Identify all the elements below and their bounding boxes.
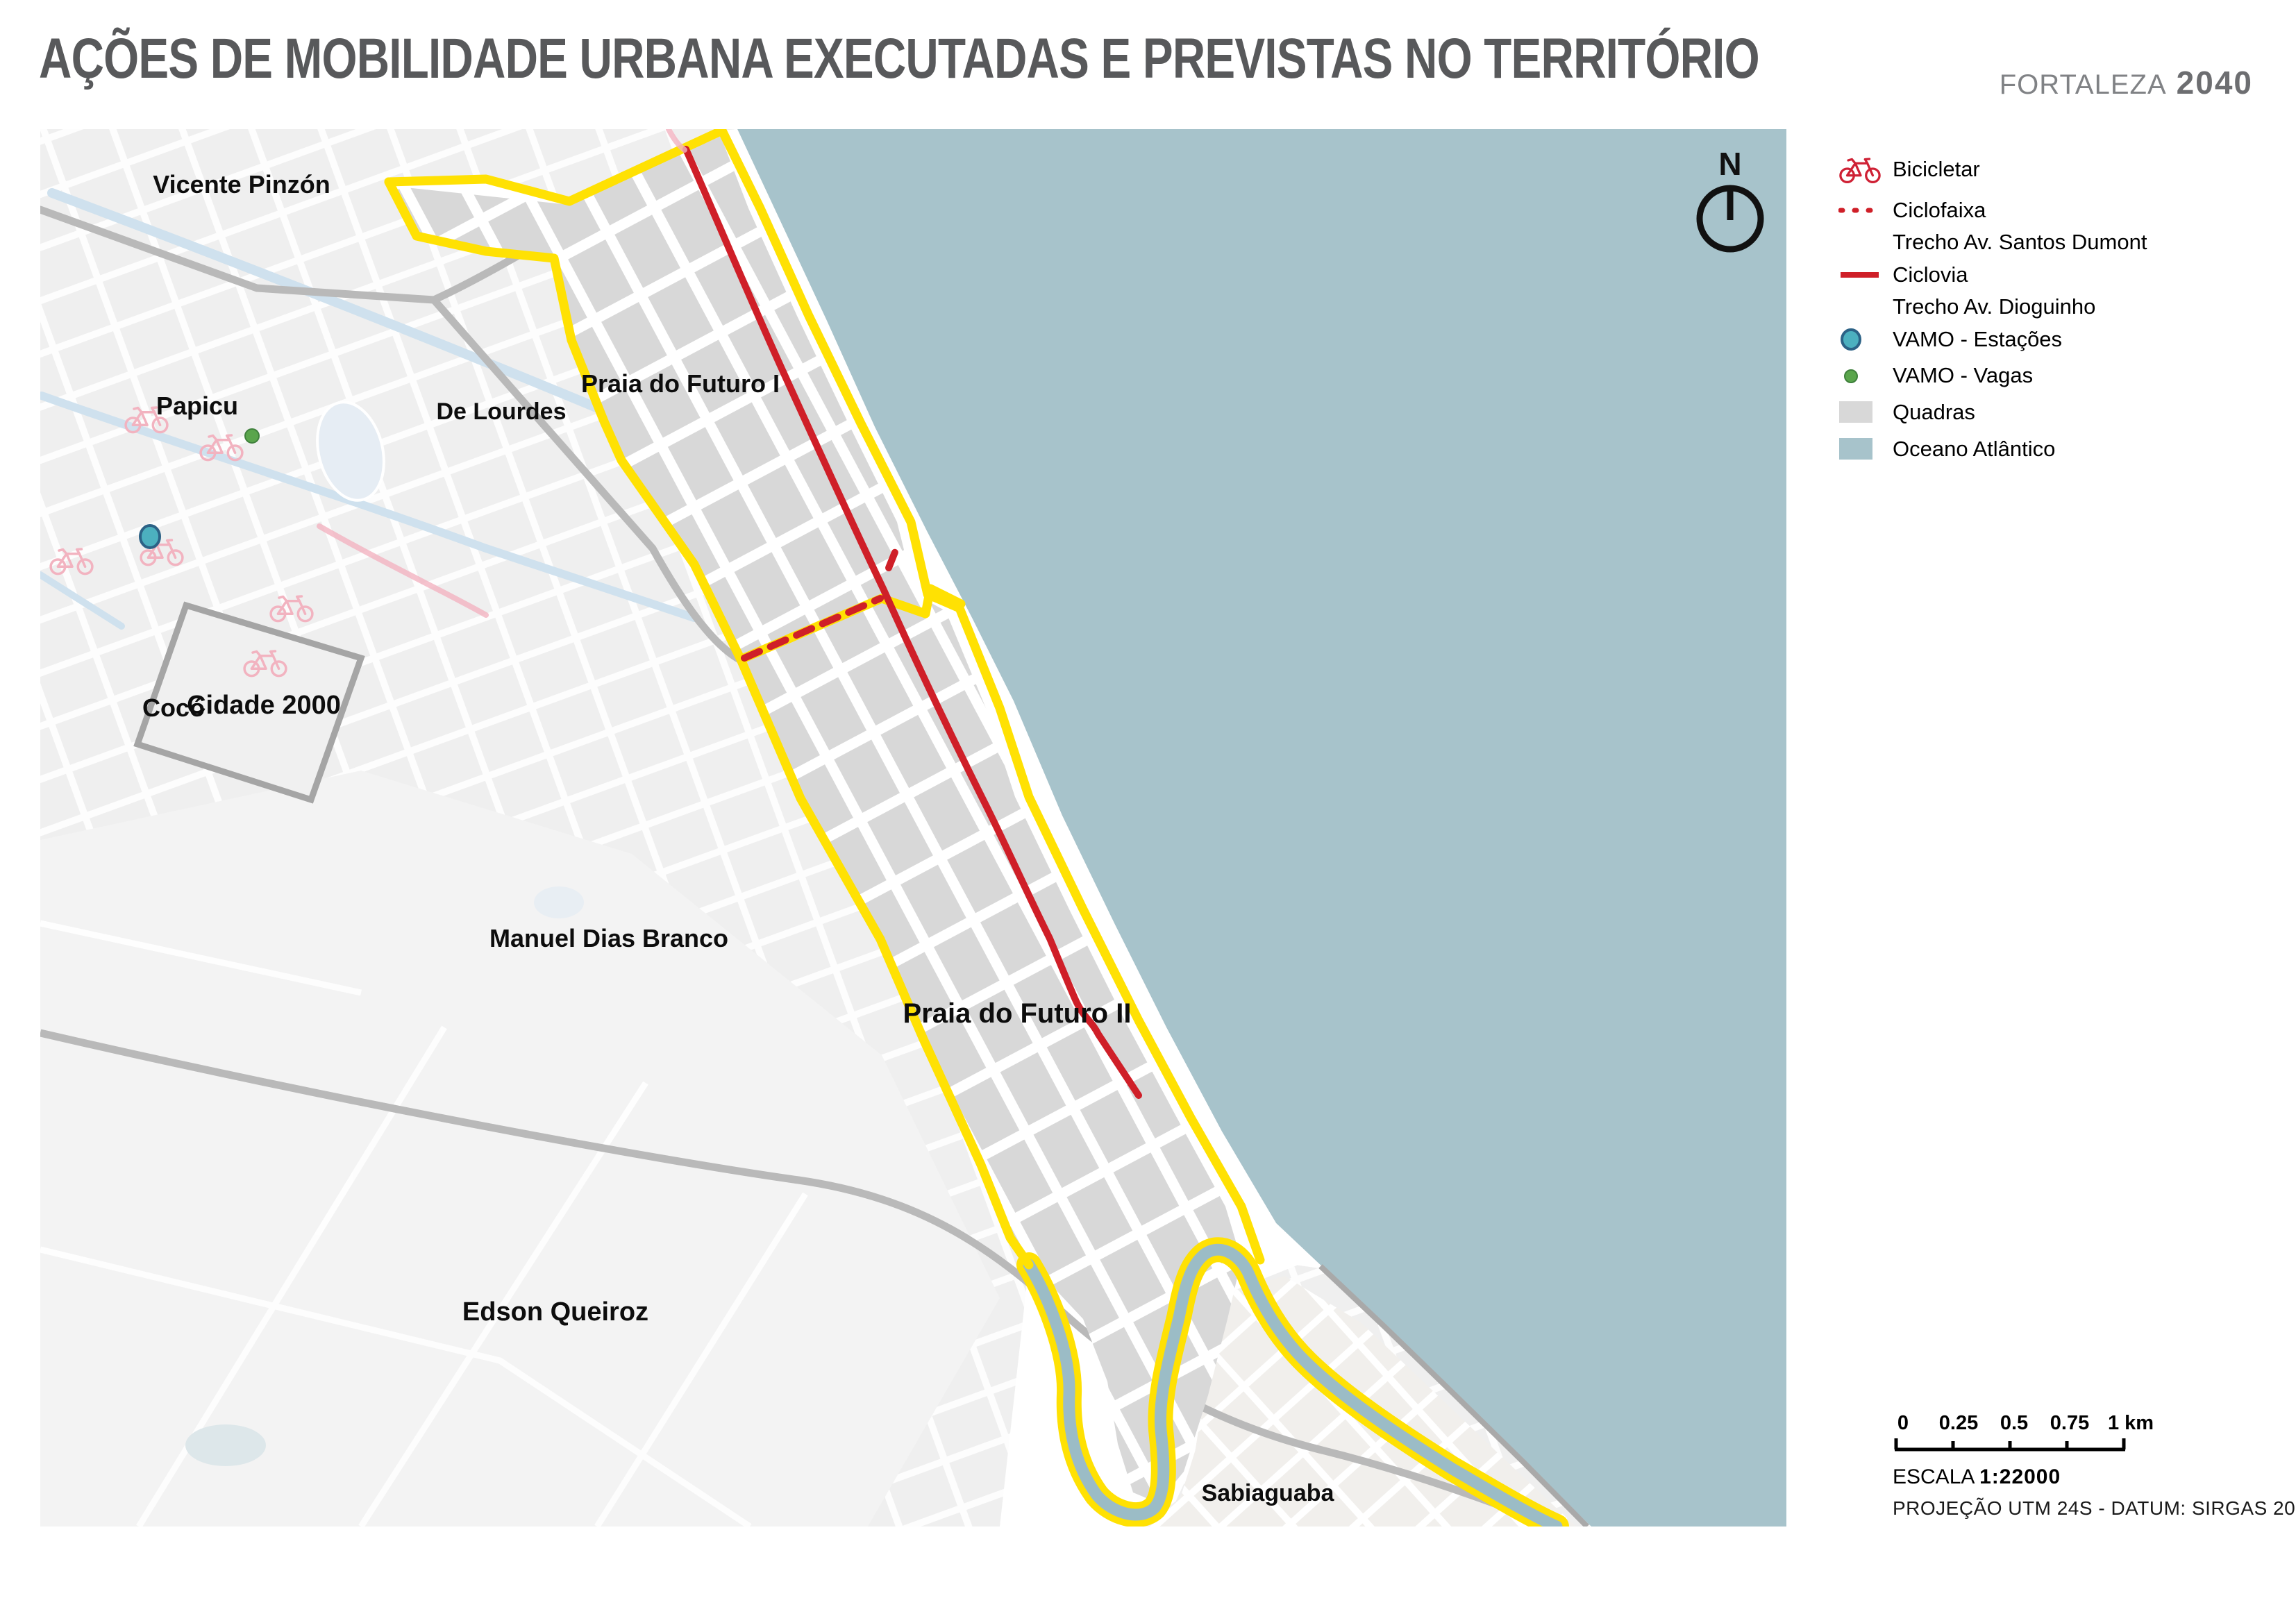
vamo-station-marker bbox=[140, 525, 160, 548]
scale-bar: 0 0.25 0.5 0.75 1 km ESCALA 1:22000 PROJ… bbox=[1893, 1412, 2184, 1520]
legend-label: VAMO - Estações bbox=[1893, 326, 2062, 353]
legend-label: Ciclovia bbox=[1893, 262, 1968, 289]
scale-tick: 0.25 bbox=[1939, 1412, 1978, 1435]
scale-bar-ruler bbox=[1893, 1437, 2133, 1452]
legend-label: Oceano Atlântico bbox=[1893, 436, 2055, 463]
legend-label: Ciclofaixa bbox=[1893, 197, 1986, 224]
label-papicu: Papicu bbox=[156, 392, 238, 420]
legend: Bicicletar Ciclofaixa Trecho Av. Santos … bbox=[1838, 154, 2283, 473]
legend-item-bicicletar: Bicicletar bbox=[1838, 154, 2283, 185]
legend-item-oceano: Oceano Atlântico bbox=[1838, 436, 2283, 463]
legend-item-vamo-estacoes: VAMO - Estações bbox=[1838, 326, 2283, 353]
bicicletar-legend-icon bbox=[1838, 154, 1893, 185]
scale-tick-labels: 0 0.25 0.5 0.75 1 km bbox=[1893, 1412, 2184, 1437]
legend-sublabel: Trecho Av. Dioguinho bbox=[1893, 294, 2283, 319]
escala-value: 1:22000 bbox=[1979, 1465, 2061, 1488]
escala-label: ESCALA bbox=[1893, 1465, 1974, 1488]
scale-tick: 0.5 bbox=[2000, 1412, 2028, 1435]
quadras-swatch bbox=[1838, 401, 1893, 424]
scale-tick: 0.75 bbox=[2050, 1412, 2089, 1435]
label-praia-do-futuro-i: Praia do Futuro I bbox=[581, 369, 780, 398]
label-edson-queiroz: Edson Queiroz bbox=[462, 1297, 648, 1327]
south-pond bbox=[185, 1424, 266, 1466]
label-praia-do-futuro-ii: Praia do Futuro II bbox=[903, 998, 1132, 1029]
projection-text: PROJEÇÃO UTM 24S - DATUM: SIRGAS 2000 bbox=[1893, 1497, 2184, 1520]
legend-item-vamo-vagas: VAMO - Vagas bbox=[1838, 362, 2283, 389]
label-vicente-pinzon: Vicente Pinzón bbox=[153, 170, 330, 199]
small-lake bbox=[534, 886, 584, 918]
legend-label: Bicicletar bbox=[1893, 156, 1980, 183]
label-sabiaguaba: Sabiaguaba bbox=[1202, 1480, 1335, 1506]
vamo-station-icon bbox=[1838, 327, 1893, 352]
legend-sublabel: Trecho Av. Santos Dumont bbox=[1893, 230, 2283, 255]
vamo-vaga-marker bbox=[245, 429, 259, 443]
map-canvas: Vicente Pinzón Papicu De Lourdes Praia d… bbox=[40, 129, 1786, 1527]
label-cidade-2000: Cidade 2000 bbox=[187, 691, 341, 720]
dashed-line-icon bbox=[1838, 205, 1893, 216]
solid-line-icon bbox=[1838, 269, 1893, 280]
scale-tick: 1 km bbox=[2108, 1412, 2154, 1435]
label-manuel-dias-branco: Manuel Dias Branco bbox=[489, 924, 728, 952]
legend-label: Quadras bbox=[1893, 399, 1975, 426]
label-de-lourdes: De Lourdes bbox=[436, 398, 566, 425]
legend-label: VAMO - Vagas bbox=[1893, 362, 2033, 389]
scale-tick: 0 bbox=[1897, 1412, 1909, 1435]
legend-item-ciclofaixa: Ciclofaixa bbox=[1838, 197, 2283, 224]
legend-item-ciclovia: Ciclovia bbox=[1838, 262, 2283, 289]
map-poster: AÇÕES DE MOBILIDADE URBANA EXECUTADAS E … bbox=[0, 0, 2296, 1623]
north-label: N bbox=[1718, 146, 1741, 182]
legend-item-quadras: Quadras bbox=[1838, 399, 2283, 426]
ocean-swatch bbox=[1838, 437, 1893, 461]
scale-text: ESCALA 1:22000 bbox=[1893, 1465, 2184, 1489]
vamo-vaga-icon bbox=[1838, 367, 1893, 385]
